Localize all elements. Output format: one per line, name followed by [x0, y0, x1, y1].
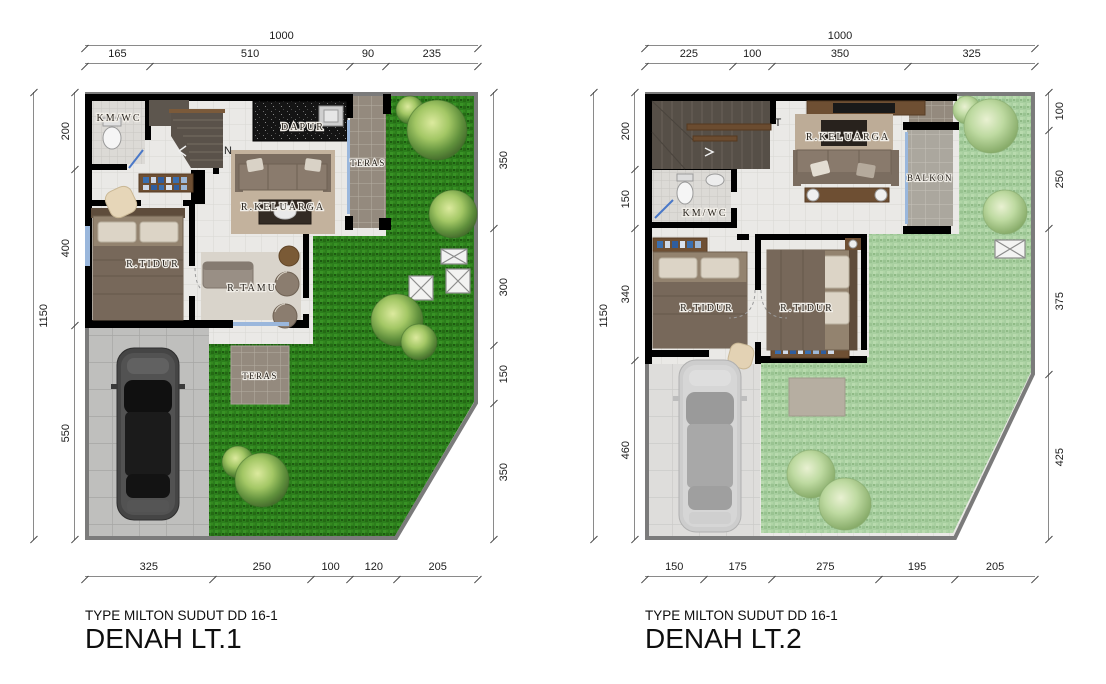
stairs-label: T [775, 117, 782, 129]
dim-segment: 200 [617, 92, 634, 170]
kitchen-counter [253, 101, 347, 141]
dim-segment: 150 [617, 170, 634, 228]
room-label-teras-front: TERAS [242, 371, 278, 381]
dims-right-lt2: 100250375425 [1048, 92, 1071, 540]
dims-bottom-lt1: 325250100120205 [85, 560, 478, 577]
dim-label: 150 [620, 190, 632, 208]
bathroom-lt1 [92, 101, 145, 168]
dim-label: 100 [743, 49, 761, 63]
dim-label: 275 [816, 562, 834, 576]
dim-label: 205 [986, 562, 1004, 576]
dim-segment: 510 [150, 47, 350, 63]
room-label-keluarga: R.KELUARGA [241, 202, 325, 213]
dim-segment: 425 [1049, 374, 1071, 540]
dim-segment: 460 [617, 361, 634, 540]
sink [706, 174, 724, 186]
dim-label: 200 [620, 122, 632, 140]
dim-label: 400 [60, 239, 72, 257]
dim-label: 100 [321, 562, 339, 576]
dim-segment: 350 [494, 92, 514, 228]
dim-segment: 250 [1049, 131, 1071, 228]
room-label-balkon: BALKON [907, 173, 953, 183]
dim-segment: 150 [494, 345, 514, 403]
dim-label: 200 [60, 122, 72, 140]
dim-label: 165 [108, 49, 126, 63]
dim-segment: 340 [617, 228, 634, 360]
dim-label: 150 [498, 365, 510, 383]
dim-segment: 550 [57, 326, 74, 540]
dim-label: 100 [1054, 102, 1066, 120]
dim-segment: 375 [1049, 228, 1071, 374]
dim-segment: 325 [85, 560, 213, 576]
room-label-tidur: R.TIDUR [126, 259, 180, 270]
dim-segment: 165 [85, 47, 150, 63]
dim-label: 340 [620, 285, 632, 303]
plan-subtitle-lt2: TYPE MILTON SUDUT DD 16-1 [645, 608, 838, 623]
room-label-tidur2: R.TIDUR [780, 303, 834, 314]
dim-segment: 175 [704, 560, 772, 576]
toilet-tank [677, 174, 693, 181]
bed-left [653, 252, 747, 348]
plan-title-lt1: DENAH LT.1 [85, 623, 242, 655]
tv [833, 103, 895, 113]
dim-segment: 1150 [594, 92, 614, 540]
dims-left-lt2: 200150340460 [617, 92, 635, 540]
room-label-keluarga: R.KELUARGA [806, 132, 890, 143]
room-label-tidur1: R.TIDUR [680, 303, 734, 314]
dim-segment: 205 [955, 560, 1035, 576]
dims-left-total-lt1: 1150 [33, 92, 54, 540]
family-room-furniture-lt1 [231, 150, 335, 234]
dim-label: 195 [908, 562, 926, 576]
room-label-kmwc: KM/WC [683, 208, 728, 219]
dim-segment: 275 [772, 560, 879, 576]
ghost-car [673, 360, 747, 532]
dim-label: 510 [241, 49, 259, 63]
toilet [103, 127, 121, 149]
dim-label: 150 [665, 562, 683, 576]
dim-label: 175 [728, 562, 746, 576]
dim-label: 250 [1054, 170, 1066, 188]
dim-label: 325 [140, 562, 158, 576]
dim-segment: 150 [645, 560, 704, 576]
window [85, 226, 90, 266]
plan-title-lt2: DENAH LT.2 [645, 623, 802, 655]
floor-plan-sheet: { "sheet": {"background": "#ffffff"}, "c… [0, 0, 1106, 684]
glass-door [233, 322, 289, 326]
dim-segment: 100 [311, 560, 350, 576]
dim-label: 425 [1054, 448, 1066, 466]
dim-label: 350 [498, 463, 510, 481]
room-label-teras-side: TERAS [350, 158, 386, 168]
dim-label: 325 [962, 49, 980, 63]
dim-label: 225 [680, 49, 698, 63]
dim-label: 90 [362, 49, 374, 63]
dim-label: 375 [1054, 292, 1066, 310]
dim-segment: 1000 [85, 29, 478, 45]
dim-segment: 1150 [34, 92, 54, 540]
floor-plan-lt1: KM/WC DAPUR TERAS R.KELUARGA R.TIDUR R.T… [85, 92, 478, 540]
dims-right-lt1: 350300150350 [493, 92, 514, 540]
dims-top-total-lt2: 1000 [645, 29, 1035, 46]
dim-label: 1000 [828, 31, 852, 45]
dim-label: 235 [423, 49, 441, 63]
dim-segment: 100 [733, 47, 772, 63]
car [111, 348, 185, 520]
dim-segment: 1000 [645, 29, 1035, 45]
dim-label: 250 [253, 562, 271, 576]
floor-plan-lt2: T R.KELUARGA BALKON KM/WC R.TIDUR R.TIDU… [645, 92, 1035, 540]
dim-label: 300 [498, 278, 510, 296]
dim-segment: 225 [645, 47, 733, 63]
dim-label: 550 [60, 424, 72, 442]
stairs-lt2 [652, 101, 771, 169]
dim-segment: 235 [386, 47, 478, 63]
dim-segment: 350 [772, 47, 909, 63]
dim-segment: 100 [1049, 92, 1071, 131]
dim-segment: 205 [397, 560, 478, 576]
planter-lt2 [995, 240, 1025, 258]
dim-segment: 120 [350, 560, 397, 576]
north-label: N [224, 145, 232, 157]
dims-bottom-lt2: 150175275195205 [645, 560, 1035, 577]
dim-segment: 300 [494, 228, 514, 345]
room-label-dapur: DAPUR [281, 122, 325, 133]
dim-label: 460 [620, 441, 632, 459]
dim-label: 350 [831, 49, 849, 63]
dim-segment: 325 [908, 47, 1035, 63]
dim-segment: 400 [57, 170, 74, 326]
dims-top-lt1: 16551090235 [85, 47, 478, 64]
round-table [279, 246, 299, 266]
wardrobe-shelf-lt1 [139, 174, 193, 192]
dims-left-lt1: 200400550 [57, 92, 75, 540]
plan-subtitle-lt1: TYPE MILTON SUDUT DD 16-1 [85, 608, 278, 623]
patio-slab [789, 378, 845, 416]
dim-segment: 90 [350, 47, 385, 63]
dim-label: 120 [365, 562, 383, 576]
dim-label: 350 [498, 151, 510, 169]
room-label-tamu: R.TAMU [227, 283, 277, 294]
wardrobe-lt2-left [653, 238, 707, 252]
dim-segment: 195 [879, 560, 955, 576]
dims-left-total-lt2: 1150 [593, 92, 614, 540]
dim-segment: 250 [213, 560, 311, 576]
dim-segment: 350 [494, 404, 514, 540]
bed-right [767, 238, 861, 350]
room-label-kmwc: KM/WC [97, 113, 142, 124]
round-chair [275, 272, 299, 296]
dim-label: 205 [429, 562, 447, 576]
dim-segment: 200 [57, 92, 74, 170]
dim-label: 1000 [269, 31, 293, 45]
dims-top-total-lt1: 1000 [85, 29, 478, 46]
dim-label: 1150 [38, 304, 50, 328]
dims-top-lt2: 225100350325 [645, 47, 1035, 64]
toilet [677, 182, 693, 204]
dim-label: 1150 [598, 304, 610, 328]
